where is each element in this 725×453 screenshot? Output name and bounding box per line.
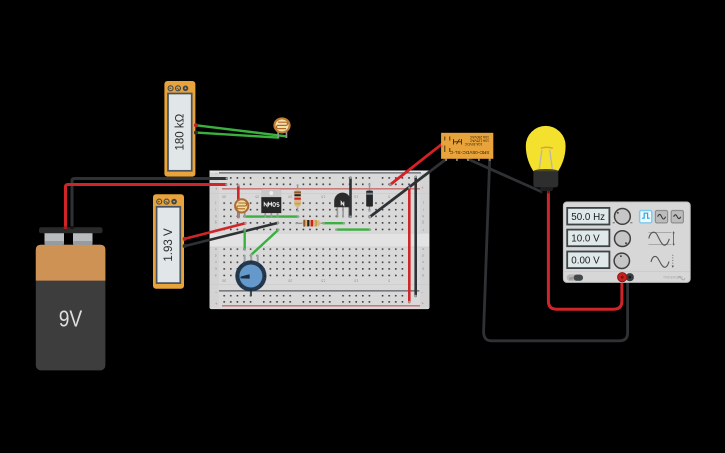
svg-text:5: 5 (388, 194, 390, 198)
svg-text:0.00 V: 0.00 V (571, 256, 600, 267)
svg-text:10A 250VAC: 10A 250VAC (469, 135, 489, 139)
svg-text:50.0 Hz: 50.0 Hz (571, 212, 605, 223)
svg-text:10A 125VAC: 10A 125VAC (469, 139, 489, 143)
svg-text:d: d (215, 254, 217, 258)
svg-text:1.93 V: 1.93 V (163, 228, 175, 262)
svg-text:10A 30VDC: 10A 30VDC (464, 142, 482, 146)
svg-text:g: g (422, 221, 424, 225)
svg-text:f: f (423, 227, 424, 231)
svg-text:10: 10 (354, 194, 358, 198)
svg-text:a: a (422, 273, 424, 277)
svg-text:10: 10 (354, 279, 358, 283)
svg-text:c: c (215, 260, 217, 264)
svg-text:c: c (422, 260, 424, 264)
svg-text:d: d (422, 254, 424, 258)
svg-text:b: b (215, 267, 217, 271)
svg-text:SRD-05VDC-SL-C: SRD-05VDC-SL-C (449, 149, 489, 155)
svg-text:a: a (215, 273, 217, 277)
svg-text:20: 20 (288, 279, 292, 283)
svg-text:30: 30 (222, 279, 226, 283)
svg-text:e: e (422, 247, 424, 251)
svg-text:180 kΩ: 180 kΩ (174, 113, 186, 150)
svg-text:15: 15 (321, 194, 325, 198)
svg-text:5: 5 (388, 279, 390, 283)
svg-text:h: h (422, 214, 424, 218)
svg-text:j: j (423, 201, 425, 205)
svg-text:9V: 9V (59, 306, 83, 332)
svg-text:25: 25 (255, 194, 259, 198)
svg-text:15: 15 (321, 279, 325, 283)
svg-text:20: 20 (288, 194, 292, 198)
svg-text:30: 30 (222, 194, 226, 198)
svg-text:h: h (215, 214, 217, 218)
svg-text:g: g (215, 221, 217, 225)
svg-text:b: b (422, 267, 424, 271)
svg-text:e: e (215, 247, 217, 251)
svg-text:10.0 V: 10.0 V (571, 234, 600, 245)
svg-text:TINKERCAD: TINKERCAD (663, 276, 683, 280)
svg-text:on: on (569, 277, 573, 281)
svg-text:j: j (215, 201, 217, 205)
